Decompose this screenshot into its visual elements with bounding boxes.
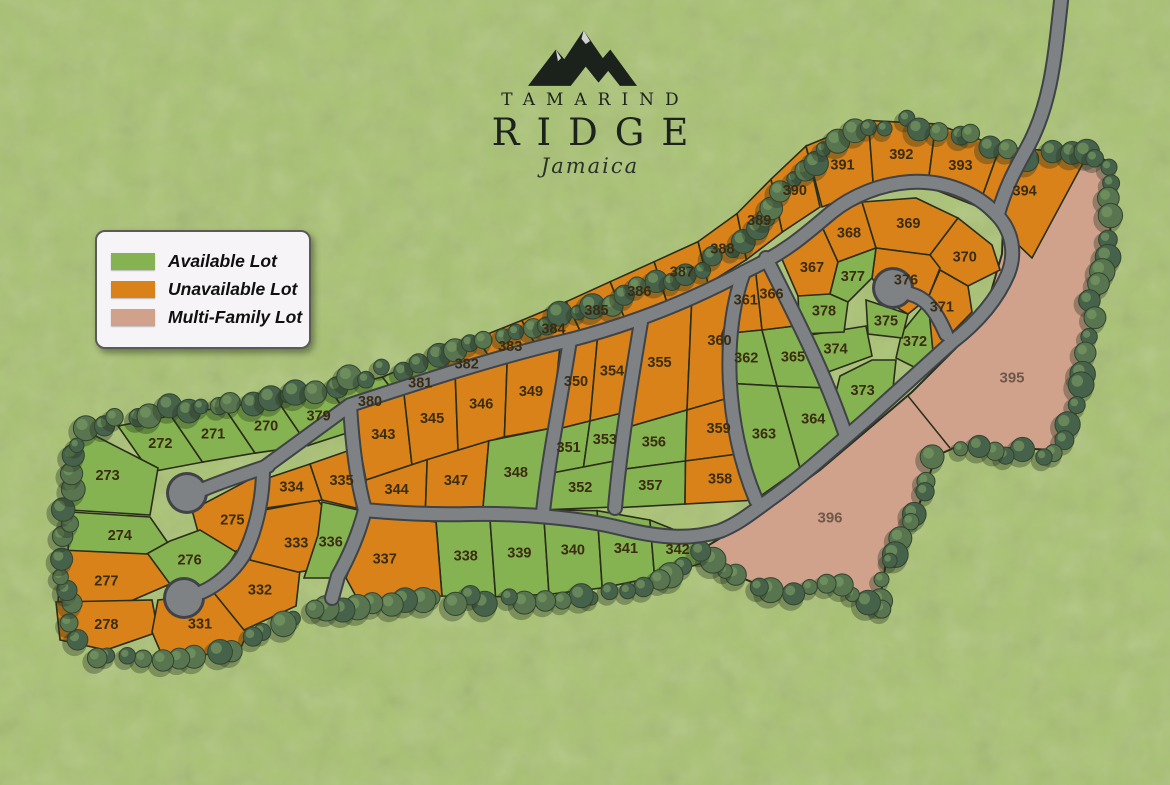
lot-label-340: 340	[561, 543, 585, 559]
community-logo: TAMARIND RIDGE Jamaica	[435, 26, 745, 178]
lot-label-387: 387	[670, 265, 694, 281]
lot-label-364: 364	[801, 412, 825, 428]
lot-map-page: 2722712703793803813823833843853863873883…	[0, 0, 1170, 785]
legend-swatch-unavailable	[111, 281, 155, 298]
mountains-icon	[525, 26, 655, 88]
lot-label-336: 336	[319, 535, 343, 551]
lot-label-378: 378	[812, 304, 836, 320]
lot-label-367: 367	[800, 260, 824, 276]
lot-label-358: 358	[708, 471, 732, 487]
lot-label-354: 354	[600, 363, 624, 379]
lot-label-338: 338	[454, 549, 478, 565]
lot-label-385: 385	[584, 303, 608, 319]
lot-label-355: 355	[647, 355, 671, 371]
lot-label-333: 333	[284, 536, 308, 552]
lot-label-384: 384	[541, 321, 565, 337]
legend-swatch-multifamily	[111, 309, 155, 326]
legend: Available Lot Unavailable Lot Multi-Fami…	[95, 230, 311, 349]
lot-label-332: 332	[248, 582, 272, 598]
lot-label-370: 370	[953, 249, 977, 265]
logo-name-top: TAMARIND	[446, 90, 745, 110]
lot-label-347: 347	[444, 473, 468, 489]
logo-name-main: RIDGE	[452, 111, 745, 154]
lot-label-365: 365	[781, 349, 805, 365]
lot-label-396: 396	[817, 510, 842, 527]
lot-label-344: 344	[385, 482, 409, 498]
lot-label-339: 339	[507, 546, 531, 562]
lot-label-350: 350	[564, 374, 588, 390]
lot-label-359: 359	[707, 421, 731, 437]
lot-label-372: 372	[903, 334, 927, 350]
lot-label-374: 374	[823, 342, 847, 358]
legend-swatch-available	[111, 253, 155, 270]
lot-label-373: 373	[850, 383, 874, 399]
legend-label-unavailable: Unavailable Lot	[168, 279, 297, 300]
lot-label-361: 361	[734, 292, 758, 308]
lot-label-331: 331	[188, 616, 212, 632]
lot-label-346: 346	[469, 396, 493, 412]
legend-label-multifamily: Multi-Family Lot	[168, 307, 302, 328]
lot-label-392: 392	[889, 147, 913, 163]
lot-label-277: 277	[94, 574, 118, 590]
lot-label-377: 377	[841, 269, 865, 285]
lot-label-389: 389	[747, 213, 771, 229]
lot-label-270: 270	[254, 419, 278, 435]
lot-label-335: 335	[329, 473, 353, 489]
lot-label-274: 274	[108, 528, 132, 544]
lot-label-388: 388	[710, 242, 734, 258]
lot-label-386: 386	[627, 284, 651, 300]
lot-label-379: 379	[306, 408, 330, 424]
lot-label-369: 369	[896, 216, 920, 232]
lot-label-342: 342	[666, 542, 690, 558]
lot-label-395: 395	[999, 370, 1024, 387]
lot-label-382: 382	[455, 356, 479, 372]
lot-label-353: 353	[593, 432, 617, 448]
lot-label-393: 393	[948, 158, 972, 174]
lot-label-394: 394	[1013, 183, 1037, 199]
lot-label-273: 273	[95, 468, 119, 484]
lot-label-376: 376	[894, 272, 918, 288]
lot-label-348: 348	[504, 465, 528, 481]
logo-script-text: Jamaica	[435, 154, 745, 178]
lot-label-360: 360	[707, 333, 731, 349]
lot-label-390: 390	[783, 183, 807, 199]
lot-label-356: 356	[642, 434, 666, 450]
lot-label-275: 275	[220, 512, 244, 528]
lot-label-271: 271	[201, 427, 225, 443]
lot-label-337: 337	[373, 552, 397, 568]
lot-label-362: 362	[734, 350, 758, 366]
lot-label-278: 278	[94, 617, 118, 633]
lot-label-357: 357	[638, 478, 662, 494]
lot-label-272: 272	[148, 436, 172, 452]
lot-label-352: 352	[568, 480, 592, 496]
legend-row-multifamily: Multi-Family Lot	[111, 307, 295, 328]
lot-label-349: 349	[519, 384, 543, 400]
lot-label-368: 368	[837, 226, 861, 242]
lot-label-381: 381	[408, 375, 432, 391]
lot-label-343: 343	[371, 427, 395, 443]
legend-label-available: Available Lot	[168, 251, 277, 272]
lot-label-383: 383	[498, 339, 522, 355]
lot-label-351: 351	[557, 440, 581, 456]
legend-row-unavailable: Unavailable Lot	[111, 279, 295, 300]
lot-label-345: 345	[420, 411, 444, 427]
lot-label-380: 380	[358, 394, 382, 410]
lot-label-371: 371	[930, 299, 954, 315]
lot-label-276: 276	[177, 553, 201, 569]
lot-label-391: 391	[830, 157, 854, 173]
lot-label-375: 375	[874, 314, 898, 330]
lot-label-334: 334	[279, 480, 303, 496]
legend-row-available: Available Lot	[111, 251, 295, 272]
lot-label-366: 366	[759, 287, 783, 303]
lot-label-363: 363	[752, 426, 776, 442]
lot-label-341: 341	[614, 541, 638, 557]
